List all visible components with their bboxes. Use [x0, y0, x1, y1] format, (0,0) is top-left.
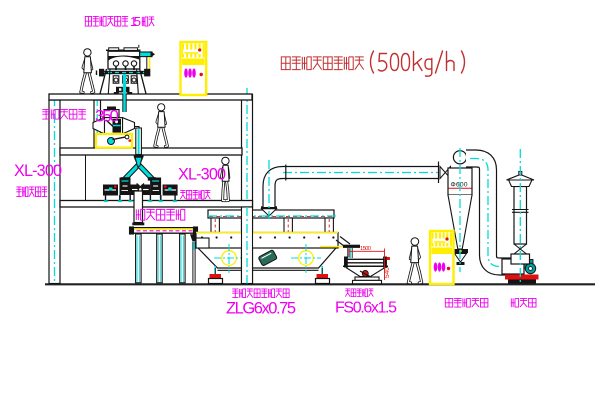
svg-text:350: 350 [95, 107, 119, 126]
svg-text:ZLG6x0.75: ZLG6x0.75 [226, 300, 296, 318]
svg-text:1500: 1500 [360, 246, 371, 252]
svg-text:1.5: 1.5 [130, 14, 141, 29]
svg-text:FS0.6x1.5: FS0.6x1.5 [335, 300, 397, 317]
svg-text:XL-300: XL-300 [14, 162, 62, 180]
svg-text:540: 540 [384, 267, 391, 278]
svg-text:Φ600: Φ600 [451, 182, 468, 189]
svg-text:XL-300: XL-300 [178, 166, 226, 184]
